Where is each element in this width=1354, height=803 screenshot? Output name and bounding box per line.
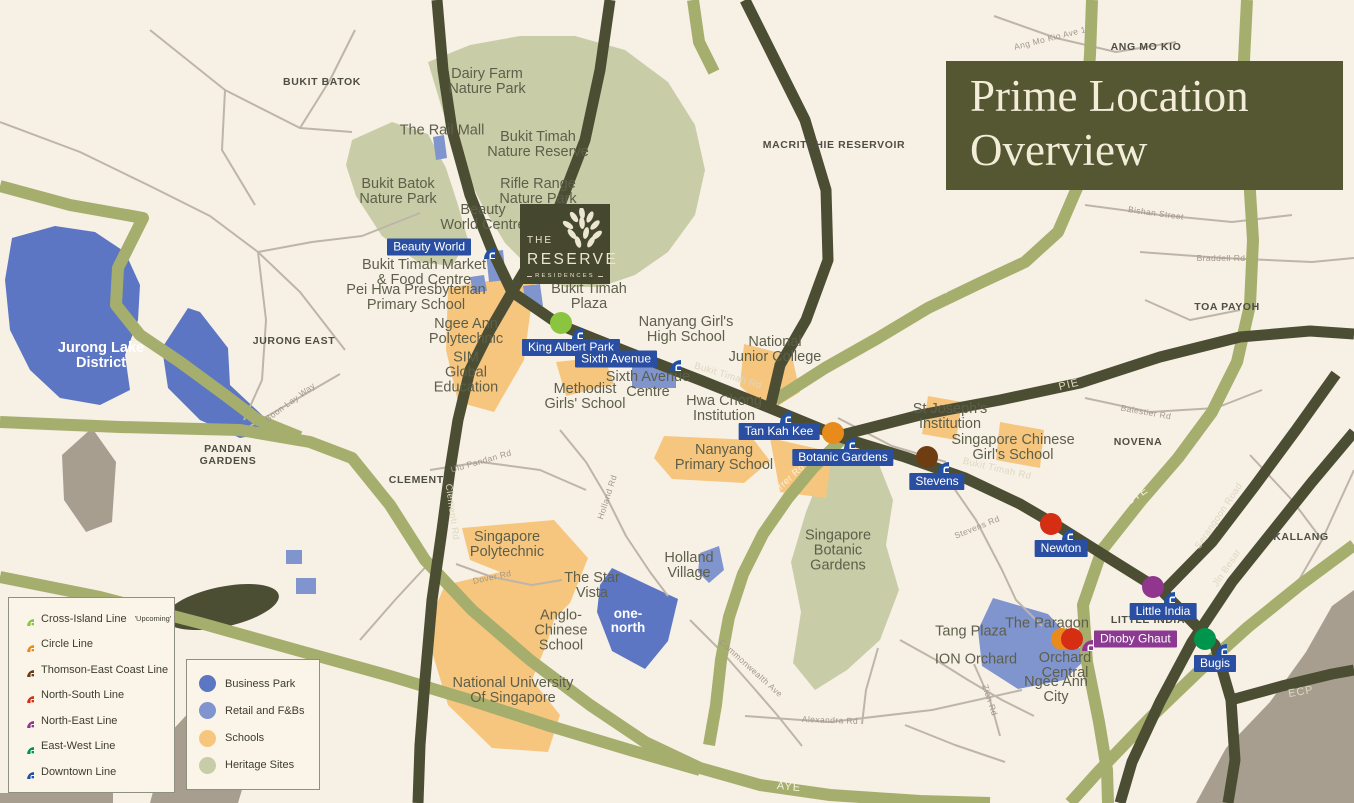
north-east-line-icon (19, 713, 34, 728)
legend-row-downtown: Downtown Line (19, 764, 164, 779)
legend-row-circle: Circle Line (19, 637, 164, 652)
legend-label: Thomson-East Coast Line (41, 664, 168, 676)
legend-label: Cross-Island Line (41, 613, 127, 625)
place-bt-plaza: Bukit Timah Plaza (551, 282, 627, 312)
district-macritchie: MACRITCHIE RESERVOIR (763, 139, 906, 151)
station-label: Little India (1130, 603, 1197, 620)
district-jurong-east: JURONG EAST (253, 335, 335, 347)
logo-the: THE (527, 235, 553, 246)
district-ang-mo-kio: ANG MO KIO (1111, 41, 1182, 53)
legend-row-business-park: Business Park (199, 675, 307, 692)
train-icon (1203, 631, 1227, 655)
train-icon (831, 425, 855, 449)
place-bt-nature-reserve: Bukit Timah Nature Reserve (487, 130, 589, 160)
district-novena: NOVENA (1114, 436, 1163, 448)
station-label: Botanic Gardens (792, 449, 893, 466)
place-nanyang-girls: Nanyang Girl's High School (639, 315, 734, 345)
train-icon (767, 399, 791, 423)
logo-name: RESERVE (527, 251, 603, 269)
legend-label: Downtown Line (41, 766, 116, 778)
legend-row-cross-island: Cross-Island Line 'Upcoming' (19, 611, 164, 626)
reserve-residences-logo: THE RESERVE RESIDENCES (520, 204, 610, 284)
place-acs: Anglo- Chinese School (534, 609, 587, 654)
logo-rule-left (527, 276, 532, 277)
area-small-1 (286, 550, 302, 564)
place-pei-hwa: Pei Hwa Presbyterian Primary School (346, 283, 485, 313)
station-label: Dhoby Ghaut (1094, 631, 1177, 648)
place-jurong-lake: Jurong Lake District (58, 341, 144, 371)
legend-row-heritage: Heritage Sites (199, 757, 307, 774)
district-kallang: KALLANG (1273, 531, 1329, 543)
station-label: Sixth Avenue (575, 351, 657, 368)
area-built-up-strip (0, 793, 113, 803)
legend-label: Retail and F&Bs (225, 705, 304, 717)
legend-row-north-south: North-South Line (19, 688, 164, 703)
station-label: Beauty World (387, 239, 471, 256)
legend-label: Heritage Sites (225, 759, 294, 771)
circle-line-icon (19, 637, 34, 652)
thomson-line-icon (19, 662, 34, 677)
place-nus: National University Of Singapore (453, 676, 574, 706)
place-ngee-ann-city: Ngee Ann City (1024, 675, 1088, 705)
train-icon (657, 347, 681, 371)
road-label: Braddell Rd (1197, 253, 1246, 263)
area-types-legend: Business Park Retail and F&Bs Schools He… (186, 659, 320, 790)
station-label: Stevens (909, 473, 964, 490)
place-st-joseph: St Joseph's Institution (913, 402, 988, 432)
mrt-lines-legend: Cross-Island Line 'Upcoming' Circle Line… (8, 597, 175, 793)
schools-swatch (199, 730, 216, 747)
place-ion-orchard: ION Orchard (935, 653, 1017, 668)
north-south-line-icon (19, 688, 34, 703)
place-scgs: Singapore Chinese Girl's School (951, 433, 1074, 463)
district-pandan-gardens: PANDAN GARDENS (200, 443, 257, 467)
business-park-swatch (199, 675, 216, 692)
page-title: Prime Location Overview (946, 61, 1343, 190)
legend-row-retail: Retail and F&Bs (199, 702, 307, 719)
place-hwa-chong: Hwa Chong Institution (686, 394, 762, 424)
legend-row-east-west: East-West Line (19, 739, 164, 754)
logo-rule-right (598, 276, 603, 277)
place-one-north: one- north (611, 607, 646, 635)
legend-note: 'Upcoming' (135, 614, 172, 623)
station-label: Newton (1035, 540, 1088, 557)
legend-label: East-West Line (41, 740, 115, 752)
place-singapore-poly: Singapore Polytechnic (470, 530, 544, 560)
legend-row-schools: Schools (199, 730, 307, 747)
place-nanyang-primary: Nanyang Primary School (675, 443, 773, 473)
legend-label: Circle Line (41, 638, 93, 650)
place-rail-mall: The Rail Mall (400, 124, 485, 139)
legend-row-north-east: North-East Line (19, 713, 164, 728)
place-dairy-farm: Dairy Farm Nature Park (448, 67, 525, 97)
train-icon (1049, 516, 1073, 540)
place-holland-village: Holland Village (664, 551, 713, 581)
road-label: Alexandra Rd (802, 714, 859, 726)
legend-label: Schools (225, 732, 264, 744)
logo-sub-text: RESIDENCES (535, 273, 595, 279)
legend-label: North-South Line (41, 689, 124, 701)
downtown-line-icon (19, 764, 34, 779)
area-small-2 (296, 578, 316, 594)
cross-island-line-icon (19, 611, 34, 626)
legend-label: North-East Line (41, 715, 117, 727)
train-icon (1069, 627, 1093, 651)
place-mgs: Methodist Girls' School (545, 382, 626, 412)
train-icon (1151, 579, 1175, 603)
train-icon (471, 235, 495, 259)
legend-row-thomson: Thomson-East Coast Line (19, 662, 164, 677)
place-tang-plaza: Tang Plaza (935, 625, 1007, 640)
retail-swatch (199, 702, 216, 719)
train-icon (559, 315, 583, 339)
east-west-line-icon (19, 739, 34, 754)
road-label: AYE (776, 780, 801, 794)
place-njc: National Junior College (729, 335, 822, 365)
district-toa-payoh: TOA PAYOH (1194, 301, 1260, 313)
district-bukit-batok: BUKIT BATOK (283, 76, 361, 88)
title-line-2: Overview (970, 123, 1343, 177)
train-icon (925, 449, 949, 473)
map-canvas: Bukit Timah Rd Bukit Timah Rd Lornie Hwy… (0, 0, 1354, 803)
place-star-vista: The Star Vista (564, 571, 620, 601)
place-botanic-gardens: Singapore Botanic Gardens (805, 529, 871, 574)
title-line-1: Prime Location (970, 69, 1343, 123)
place-bukit-batok-np: Bukit Batok Nature Park (359, 177, 436, 207)
district-clementi: CLEMENTI (389, 474, 447, 486)
leaf-spray-icon (561, 208, 603, 248)
place-ngee-ann-poly: Ngee Ann Polytechnic (429, 317, 503, 347)
place-beauty-world-centre: Beauty World Centre (440, 203, 525, 233)
station-label: Bugis (1194, 655, 1236, 672)
station-label: Tan Kah Kee (739, 423, 820, 440)
place-sim: SIM Global Education (434, 351, 499, 396)
legend-label: Business Park (225, 678, 295, 690)
heritage-swatch (199, 757, 216, 774)
